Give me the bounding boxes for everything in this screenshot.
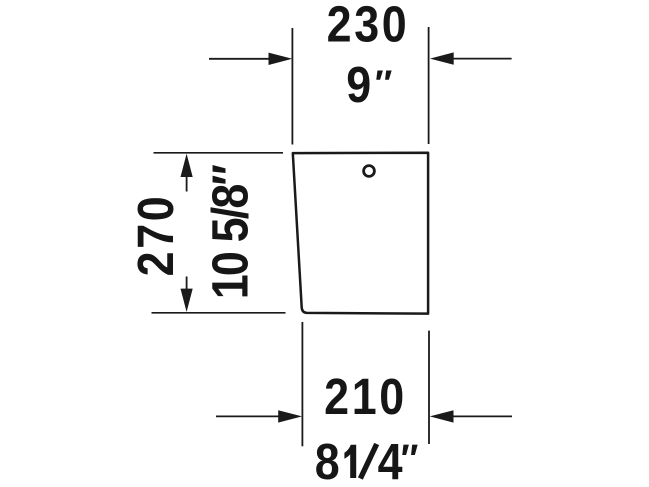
svg-text:10 5/8″: 10 5/8″ (203, 164, 259, 299)
svg-text:″: ″ (401, 437, 419, 482)
svg-text:210: 210 (324, 370, 407, 426)
svg-text:9: 9 (346, 57, 371, 113)
svg-text:230: 230 (327, 0, 410, 53)
svg-text:8: 8 (315, 434, 340, 487)
svg-text:270: 270 (128, 194, 184, 277)
svg-text:″: ″ (375, 63, 393, 103)
svg-text:4: 4 (378, 434, 403, 487)
